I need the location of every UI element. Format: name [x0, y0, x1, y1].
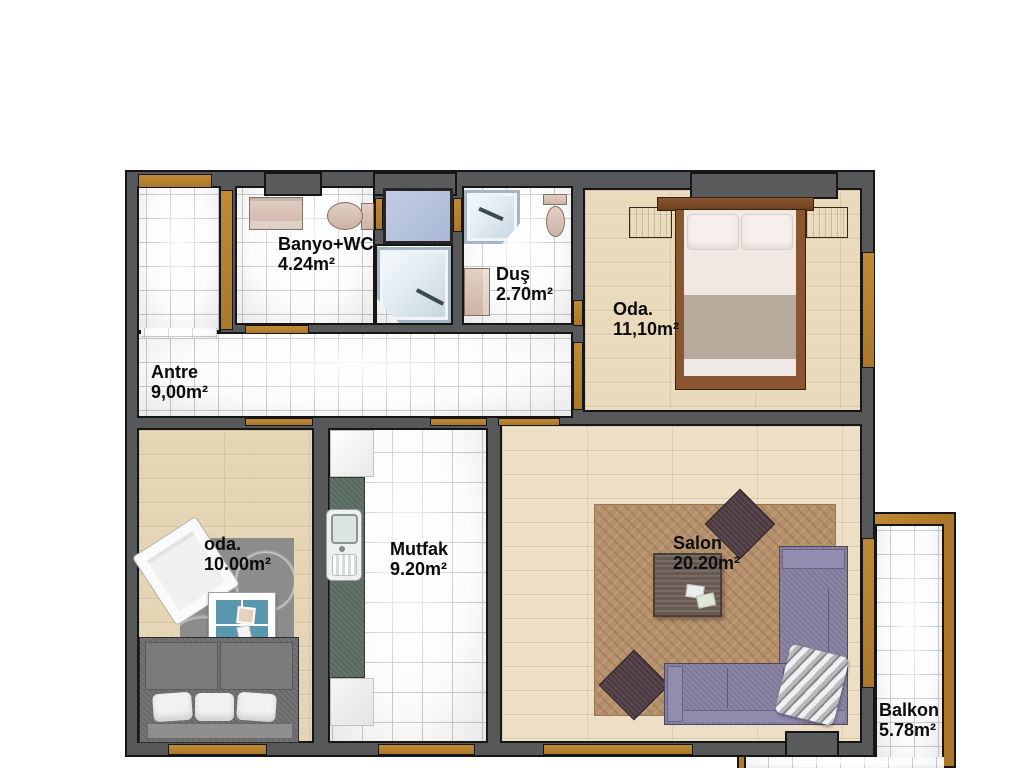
sectional-armrest-left	[667, 666, 683, 722]
door-shaft-right	[453, 198, 462, 232]
bed-blanket	[684, 295, 796, 359]
door-shaft-left	[375, 198, 383, 230]
kitchen-sink	[326, 509, 362, 581]
door-shower-room	[573, 300, 583, 326]
kitchen-sink-drainboard	[332, 554, 357, 576]
door-antre-bathroom	[220, 190, 233, 330]
light-shaft	[383, 188, 453, 244]
hall-label: Antre 9,00m²	[151, 362, 208, 402]
sectional-seat-divider-1	[727, 668, 728, 708]
balcony-floor-bottom-strip	[746, 757, 944, 768]
kitchen-counter-end	[330, 678, 374, 726]
door-kitchen	[430, 418, 487, 426]
kitchen-label: Mutfak 9.20m²	[390, 539, 448, 579]
sofa-gray-back-cushion-right	[220, 642, 293, 690]
sofa-gray-seat-front	[147, 723, 293, 739]
wall-column-bottom-salon	[785, 731, 839, 757]
small-room-name: oda.	[204, 534, 271, 554]
window-top-left	[138, 174, 212, 188]
bedroom-area: 11,10m²	[613, 319, 679, 339]
window-bottom-salon	[543, 744, 693, 755]
kitchen-sink-bowl	[331, 514, 358, 544]
shower-door-handle	[416, 288, 444, 306]
bathroom-area: 4.24m²	[278, 254, 374, 274]
window-bottom-small-room	[168, 744, 267, 755]
opening-corridor-salon	[498, 418, 560, 426]
shower-door-handle-dus	[478, 207, 503, 221]
sofa-gray-back-cushion-left	[145, 642, 218, 690]
hall-name: Antre	[151, 362, 208, 382]
sectional-armrest-top	[782, 549, 845, 569]
bedroom-label: Oda. 11,10m²	[613, 299, 679, 339]
double-bed	[657, 197, 814, 390]
kitchen-sink-faucet	[339, 546, 345, 552]
refrigerator	[330, 430, 374, 477]
cabinet-dus	[464, 268, 490, 316]
bed-pillow-left	[687, 214, 739, 250]
magazine-2	[696, 592, 716, 608]
window-salon-right	[862, 538, 875, 688]
bathroom-name: Banyo+WC	[278, 234, 374, 254]
living-room-name: Salon	[673, 533, 740, 553]
toilet-bowl-bathroom	[327, 202, 363, 230]
kitchen-name: Mutfak	[390, 539, 448, 559]
bed-pillow-right	[741, 214, 793, 250]
balcony-label: Balkon 5.78m²	[879, 700, 939, 740]
hall-area: 9,00m²	[151, 382, 208, 402]
floor-plan-canvas: { "plan": { "type": "apartment-floor-pla…	[0, 0, 1024, 768]
antre-floor-seam	[141, 328, 217, 338]
living-room-area: 20.20m²	[673, 553, 740, 573]
sofa-pillow-3	[236, 692, 277, 723]
sofa-pillow-2	[195, 693, 234, 721]
window-bottom-kitchen	[378, 744, 475, 755]
table-photo	[236, 606, 256, 625]
bathroom-label: Banyo+WC 4.24m²	[278, 234, 374, 274]
sofa-gray	[139, 637, 299, 743]
living-room-label: Salon 20.20m²	[673, 533, 740, 573]
window-bedroom-right	[862, 252, 875, 368]
balcony-bottom-wall-segment	[737, 757, 746, 768]
small-room-label: oda. 10.00m²	[204, 534, 271, 574]
balcony-area: 5.78m²	[879, 720, 939, 740]
small-room-area: 10.00m²	[204, 554, 271, 574]
shower-room-area: 2.70m²	[496, 284, 553, 304]
antre-floor-column	[137, 186, 221, 332]
shower-room-label: Duş 2.70m²	[496, 264, 553, 304]
toilet-bowl-dus	[546, 206, 565, 237]
door-bathroom-bottom	[245, 325, 309, 334]
bed-foot-sheet	[684, 359, 796, 376]
wall-column-top-1	[264, 172, 322, 196]
sofa-pillow-1	[152, 692, 193, 723]
door-small-room	[245, 418, 313, 426]
toilet-tank-dus	[543, 194, 567, 205]
shower-room-name: Duş	[496, 264, 553, 284]
wall-column-top-bedroom	[690, 172, 838, 199]
bedroom-name: Oda.	[613, 299, 679, 319]
door-bedroom	[573, 342, 583, 410]
balcony-name: Balkon	[879, 700, 939, 720]
kitchen-area: 9.20m²	[390, 559, 448, 579]
bathroom-sink-cabinet	[249, 197, 303, 230]
